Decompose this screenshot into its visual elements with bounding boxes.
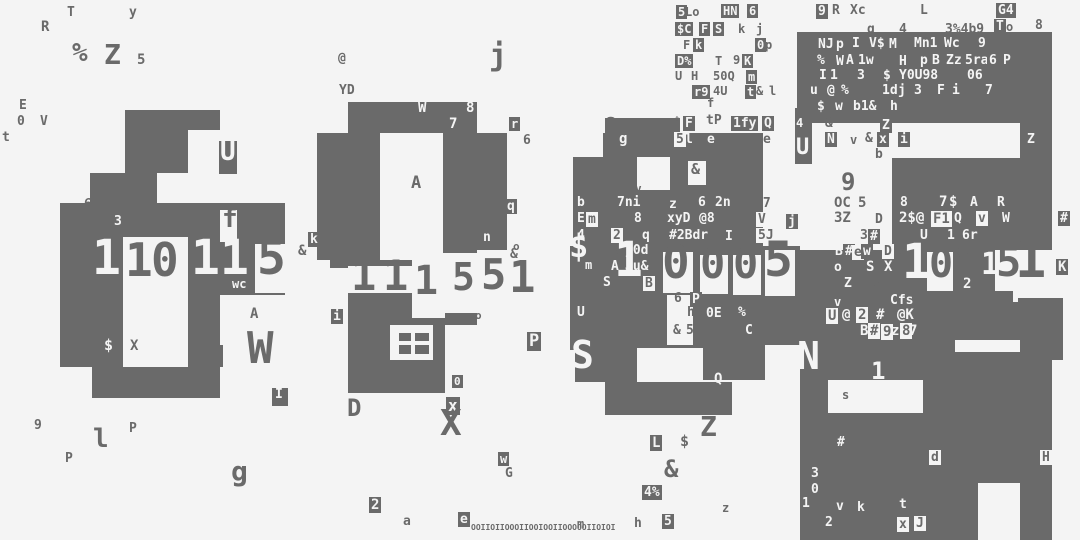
glyph-h: H: [1040, 450, 1052, 465]
glyph-f1: F1: [931, 211, 952, 227]
glyph-t: t: [2, 131, 10, 144]
glyph-50q: 50Q: [713, 70, 735, 82]
glyph-q: q: [505, 199, 517, 214]
glyph-q: q: [988, 39, 996, 52]
glyph-z: z: [667, 197, 679, 212]
figure-2-block: [415, 333, 429, 341]
glyph-6r: 6r: [962, 229, 978, 242]
glyph-p: P: [1001, 53, 1013, 68]
glyph-p: p: [920, 54, 928, 67]
glyph-2n: 2n: [715, 196, 731, 209]
glyph-u: U: [826, 308, 838, 324]
glyph-w: W: [1002, 212, 1010, 225]
glyph-i: I: [275, 388, 283, 401]
figure-4-block: [955, 340, 1020, 352]
figure-2-block: [317, 133, 380, 260]
glyph-g: g: [619, 132, 627, 146]
glyph-d: D: [347, 396, 361, 420]
glyph-8: 8: [900, 196, 908, 209]
glyph-z: Z: [880, 118, 892, 133]
glyph-f: F: [935, 83, 947, 98]
glyph-w: w: [498, 452, 509, 466]
glyph-3z: 3Z: [834, 211, 851, 225]
glyph-t: t: [899, 498, 907, 511]
glyph-p: p: [836, 38, 844, 51]
glyph-v: V: [40, 115, 48, 128]
glyph-h5: h5: [687, 306, 703, 319]
glyph-j: j: [756, 23, 763, 35]
glyph-n: n: [483, 231, 491, 244]
glyph-1: 1: [802, 497, 810, 510]
glyph-i: i: [952, 84, 960, 97]
glyph-xc: Xc: [850, 4, 866, 17]
glyph-b: b: [577, 196, 585, 209]
glyph-s: S: [864, 259, 876, 275]
figure-2-block: [390, 325, 433, 360]
glyph-6: 6: [1001, 276, 1008, 288]
figure-2-block: [348, 102, 477, 133]
glyph-r: r: [509, 117, 520, 131]
glyph-symbol: $: [949, 195, 957, 209]
glyph-r7: r7: [755, 197, 771, 210]
glyph-j: j: [898, 84, 906, 97]
glyph-z: Z: [104, 41, 121, 69]
glyph-r: R: [832, 4, 840, 17]
glyph-f: F: [683, 39, 690, 51]
figure-2-block: [399, 345, 411, 354]
glyph-5: 5: [662, 514, 674, 529]
glyph-6: 6: [523, 134, 531, 147]
glyph-w: w: [861, 244, 873, 259]
glyph-o: o: [1006, 21, 1013, 33]
glyph-symbol: #: [868, 323, 880, 339]
glyph-x: X: [440, 406, 462, 442]
glyph-q: q: [642, 229, 650, 242]
glyph-p: P: [65, 452, 73, 465]
glyph-8: 8: [634, 212, 642, 225]
glyph-d: d: [929, 450, 941, 465]
glyph-0: 0: [17, 115, 25, 128]
glyph-v: v: [836, 500, 844, 513]
glyph-u: U: [577, 306, 585, 319]
glyph-z: Z: [700, 413, 717, 441]
glyph-v: V$: [869, 37, 885, 50]
glyph-q: q: [867, 23, 875, 36]
glyph-8: 8: [466, 101, 474, 115]
glyph-l: L: [920, 4, 928, 17]
glyph-s: s: [842, 389, 849, 401]
glyph-a: A: [846, 54, 854, 67]
glyph-w: W: [247, 327, 274, 371]
glyph-symbol: &: [298, 244, 306, 258]
glyph-i: I: [725, 230, 733, 243]
glyph-symbol: %: [738, 306, 746, 319]
glyph-4u: 4U: [713, 85, 727, 97]
glyph-ooiioiioooiiooiooiioooooiioioi: OOIIOIIOOOIIOOIOOIIOOOOOIIOIOI: [471, 524, 616, 532]
glyph-6: 6: [987, 53, 999, 68]
glyph-m: m: [746, 70, 757, 84]
glyph-w: W: [418, 101, 426, 115]
glyph-cfs: Cfs: [890, 294, 913, 307]
glyph-5: 5: [764, 236, 793, 284]
glyph-symbol: $: [104, 338, 113, 353]
glyph-symbol: #: [868, 229, 880, 244]
glyph-k: k: [857, 501, 865, 514]
glyph-l: L: [650, 435, 662, 451]
glyph-symbol: $: [883, 69, 891, 82]
figure-1-block: [92, 367, 220, 398]
glyph-go: go: [954, 245, 968, 257]
glyph-symbol: &: [664, 457, 678, 481]
glyph-r: R: [41, 20, 49, 34]
glyph-v: v: [834, 296, 841, 308]
glyph-9: 9: [841, 170, 855, 194]
glyph-e: E: [19, 99, 27, 112]
glyph-x: X: [882, 259, 894, 275]
glyph-oc: OC: [834, 196, 851, 210]
glyph-7: 7: [985, 84, 993, 97]
glyph-1: 1: [828, 68, 840, 83]
glyph-j: j: [489, 41, 507, 71]
glyph-3: 3: [114, 215, 122, 228]
glyph-0: 0: [700, 243, 725, 285]
glyph-a: A: [411, 175, 421, 192]
glyph-y: y: [872, 277, 880, 290]
glyph-symbol: &: [756, 85, 763, 97]
glyph-mn1: Mn1: [914, 37, 937, 50]
figure-2-block: [443, 133, 507, 253]
glyph-symbol: @: [825, 83, 837, 98]
glyph-q: Q: [954, 212, 962, 225]
figure-2-block: [399, 333, 411, 341]
glyph-d: D: [882, 244, 894, 259]
glyph-b: B: [930, 53, 942, 68]
glyph-symbol: &: [691, 162, 700, 177]
glyph-f: F: [683, 116, 695, 131]
glyph-2: 2: [961, 276, 973, 292]
glyph-h: h: [634, 517, 642, 530]
glyph-9: 9: [978, 37, 986, 50]
glyph-wc: Wc: [944, 37, 960, 50]
glyph-h: H: [691, 70, 698, 82]
glyph-7: 7: [449, 117, 457, 131]
glyph-e: e: [707, 133, 715, 146]
glyph-c: $C: [675, 22, 693, 36]
glyph-k: K: [1056, 259, 1068, 275]
glyph-symbol: %: [72, 40, 88, 66]
glyph-6: 6: [747, 4, 758, 18]
glyph-o: o: [475, 310, 482, 321]
glyph-3: 3: [912, 83, 924, 98]
glyph-n: N: [825, 132, 837, 147]
glyph-8: 8: [1035, 19, 1043, 32]
glyph-k: @K: [897, 308, 914, 322]
glyph-5: 5: [686, 324, 694, 337]
glyph-u: U: [796, 137, 809, 159]
figure-2-block: [445, 313, 477, 325]
glyph-yd: YD: [339, 84, 355, 97]
figure-1-block: [188, 130, 220, 173]
glyph-5ra: 5ra: [965, 54, 988, 67]
glyph-m: M: [887, 37, 899, 52]
glyph-9: 9: [34, 419, 42, 432]
glyph-5: 5: [481, 254, 506, 296]
glyph-4: 4: [796, 117, 803, 129]
figure-3-block: [703, 340, 765, 380]
glyph-1w: 1w: [856, 53, 876, 68]
glyph-l: l: [769, 85, 776, 97]
glyph-6: 6: [674, 292, 682, 305]
glyph-h: h: [890, 100, 898, 113]
glyph-5: 5: [137, 53, 145, 67]
glyph-z: z: [722, 502, 729, 514]
glyph-b1: b1&: [851, 99, 878, 114]
glyph-e: e: [763, 133, 771, 146]
glyph-t: T: [67, 6, 75, 19]
glyph-y: y: [129, 6, 137, 19]
glyph-t: T: [715, 55, 722, 67]
glyph-2: 2: [825, 516, 833, 529]
glyph-g: G: [505, 467, 513, 480]
glyph-f: F: [699, 22, 710, 36]
glyph-1: 1: [1015, 234, 1046, 286]
glyph-x: x: [897, 517, 909, 532]
glyph-k: k: [308, 232, 320, 247]
glyph-k: K: [742, 54, 753, 68]
glyph-a: a: [403, 515, 411, 528]
glyph-k: k: [738, 23, 745, 35]
glyph-7: 7: [909, 324, 917, 338]
glyph-m: m: [585, 259, 592, 271]
glyph-lo: Lo: [685, 6, 699, 18]
glyph-z: Z: [842, 276, 854, 291]
glyph-u: u: [810, 84, 818, 97]
glyph-p: p: [765, 39, 772, 51]
glyph-b: B: [835, 245, 843, 258]
glyph-1: 1: [92, 234, 121, 282]
glyph-1: 1: [902, 238, 931, 286]
glyph-h: H: [897, 54, 909, 69]
glyph-e: e: [604, 112, 617, 134]
glyph-2: 2: [856, 307, 868, 323]
glyph-6: 6: [84, 198, 92, 211]
glyph-1: 1: [351, 255, 376, 297]
glyph-tp: tP: [706, 114, 722, 127]
figure-2-block: [330, 255, 348, 268]
glyph-0: 0: [811, 483, 819, 496]
glyph-1: 1: [509, 256, 536, 300]
glyph-1: 1: [191, 234, 220, 282]
glyph-z: z: [891, 324, 899, 338]
glyph-symbol: $: [817, 100, 825, 113]
glyph-1: 1: [414, 261, 438, 301]
glyph-x: X: [130, 339, 138, 353]
glyph-d: D: [875, 213, 883, 226]
glyph-4: 4%: [642, 485, 662, 500]
glyph-06: 06: [967, 69, 983, 82]
glyph-v: v: [976, 211, 988, 226]
glyph-i: I: [819, 69, 827, 82]
glyph-r: R: [995, 195, 1007, 210]
glyph-2: 2$@: [899, 211, 924, 225]
glyph-3: 3: [857, 69, 865, 82]
glyph-zz: Zz: [944, 53, 964, 68]
glyph-m: m: [586, 212, 598, 227]
glyph-1: 1: [871, 359, 885, 383]
glyph-8: @8: [699, 212, 715, 225]
glyph-l: l: [685, 133, 693, 146]
glyph-v: V: [756, 212, 768, 227]
glyph-d: D%: [675, 54, 693, 68]
glyph-i: I: [852, 37, 860, 50]
glyph-4: 4: [899, 23, 907, 36]
glyph-n: N: [797, 337, 820, 375]
glyph-1: 1: [220, 234, 249, 282]
glyph-symbol: $: [680, 434, 689, 449]
glyph-1: 1: [125, 237, 153, 283]
glyph-5: 5: [452, 258, 475, 296]
glyph-symbol: #: [835, 435, 847, 450]
glyph-k: k: [693, 38, 704, 52]
glyph-w: W: [834, 54, 846, 69]
glyph-u: U: [220, 139, 236, 165]
glyph-t: T: [994, 19, 1006, 34]
glyph-e: E: [577, 212, 585, 225]
glyph-v: v: [850, 134, 857, 146]
glyph-j: j: [786, 214, 798, 229]
figure-4-block: [817, 123, 1020, 157]
glyph-1d: 1d: [880, 83, 900, 98]
glyph-nj: NJ: [816, 37, 836, 52]
glyph-hn: HN: [721, 4, 739, 18]
glyph-m: m: [577, 518, 584, 530]
glyph-x: x: [877, 132, 889, 147]
figure-4-block: [978, 483, 1020, 540]
glyph-1fy: 1fy: [731, 116, 758, 131]
glyph-34b9: 3%4b9: [945, 23, 984, 36]
glyph-s: S: [603, 276, 611, 289]
glyph-9: 9: [816, 4, 828, 19]
glyph-f: f: [222, 206, 238, 232]
glyph-u: U: [675, 70, 682, 82]
glyph-9: 9: [733, 54, 740, 66]
glyph-0: 0: [733, 243, 758, 285]
glyph-i: i: [898, 132, 910, 147]
glyph-b: B: [643, 276, 655, 291]
glyph-o: o: [834, 261, 842, 274]
glyph-1: 1: [614, 236, 643, 284]
glyph-symbol: %: [665, 277, 672, 289]
glyph-v: v: [635, 183, 642, 194]
glyph-6: 6: [698, 196, 706, 209]
glyph-p: P: [129, 422, 137, 435]
glyph-symbol: #: [1058, 211, 1070, 226]
glyph-2: 2: [369, 497, 381, 513]
glyph-a: A: [970, 196, 978, 209]
glyph-5: 5: [858, 196, 866, 210]
glyph-symbol: %: [817, 54, 825, 67]
glyph-0: 0: [452, 375, 463, 388]
glyph-symbol: &: [673, 324, 681, 337]
glyph-f: f: [707, 97, 714, 109]
glyph-y0u98: Y0U98: [899, 69, 938, 82]
glyph-z: Z: [1025, 132, 1037, 147]
glyph-0: 0: [929, 244, 953, 284]
glyph-7ni: 7ni: [617, 196, 640, 209]
glyph-3: 3: [811, 467, 819, 480]
glyph-symbol: @: [842, 308, 850, 322]
glyph-e: e: [458, 512, 470, 527]
glyph-w: w: [835, 100, 843, 113]
figure-3-block: [637, 348, 703, 382]
figure-2-block: [380, 133, 443, 260]
glyph-s: S: [571, 336, 594, 374]
figure-2-block: [415, 345, 429, 354]
glitch-canvas: TyR%Z5E0Vt@YDj63Ufwc$XAk&IW1101159lPPgW8…: [0, 0, 1080, 540]
glyph-c: C: [745, 324, 753, 337]
glyph-symbol: %: [841, 84, 849, 97]
glyph-5: 5: [257, 234, 286, 282]
glyph-symbol: &: [865, 132, 873, 145]
glyph-1: 1: [383, 255, 408, 297]
glyph-g4: G4: [996, 3, 1016, 18]
figure-3-block: [670, 157, 763, 190]
glyph-3: 3: [860, 229, 868, 242]
glyph-b: b: [875, 148, 883, 161]
glyph-q: Q: [762, 116, 774, 131]
glyph-0: 0: [151, 237, 179, 283]
glyph-a: A: [250, 307, 258, 321]
glyph-l: l: [93, 426, 109, 452]
glyph-0e: 0E: [704, 306, 724, 321]
glyph-xyd: xyD: [667, 212, 690, 225]
glyph-symbol: $: [673, 116, 681, 129]
glyph-g: g: [231, 458, 248, 486]
glyph-q: Q: [714, 372, 722, 386]
glyph-i: i: [331, 309, 343, 324]
glyph-j: J: [914, 516, 926, 531]
glyph-7: 7: [937, 194, 949, 210]
glyph-symbol: #: [874, 307, 886, 323]
glyph-symbol: &: [825, 117, 833, 130]
glyph-symbol: @: [338, 52, 346, 65]
glyph-s: S: [713, 22, 724, 36]
glyph-p: P: [527, 332, 541, 351]
glyph-t: t: [745, 85, 756, 99]
